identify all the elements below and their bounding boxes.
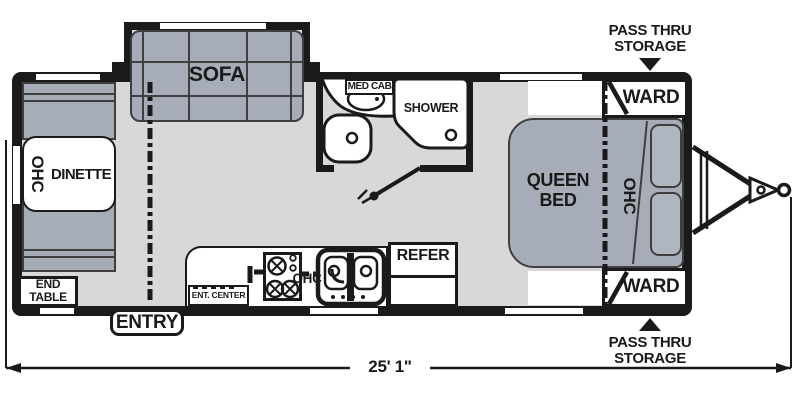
slideout-left-joint bbox=[112, 62, 128, 80]
ent-center-label: ENT. CENTER bbox=[188, 290, 249, 300]
dinette-bench-top bbox=[22, 82, 116, 140]
front-top-window bbox=[500, 74, 582, 80]
rear-bottom-window bbox=[40, 308, 74, 314]
slideout-window bbox=[160, 23, 266, 29]
shower-label: SHOWER bbox=[396, 101, 466, 115]
med-cab-label: MED CAB bbox=[345, 81, 394, 92]
arrow-down-icon bbox=[639, 58, 661, 71]
queen-bed-label: QUEEN BED bbox=[508, 170, 608, 210]
kitchen-ohc-label: OHC bbox=[292, 271, 322, 286]
pass-thru-area-top bbox=[528, 81, 604, 115]
pillow bbox=[650, 124, 682, 188]
entry-label: ENTRY bbox=[110, 312, 184, 334]
dinette-ohc-label: OHC bbox=[25, 144, 47, 204]
sofa-armrest-line-left bbox=[142, 32, 144, 120]
hitch-icon bbox=[693, 147, 790, 233]
bedroom-window bbox=[505, 308, 583, 314]
dimension-label: 25' 1" bbox=[350, 357, 430, 377]
bath-wall-right bbox=[466, 80, 473, 172]
pass-thru-top-label: PASS THRU STORAGE bbox=[593, 23, 707, 55]
refer-label: REFER bbox=[388, 247, 458, 265]
arrow-left-icon bbox=[6, 363, 21, 373]
rear-side-window bbox=[13, 146, 20, 204]
dinette-bench-line bbox=[22, 249, 116, 251]
sofa-seat-line bbox=[132, 95, 302, 97]
bed-ohc-label: OHC bbox=[617, 166, 639, 226]
bath-wall-bottom-left bbox=[316, 165, 334, 172]
ward-bottom-label: WARD bbox=[614, 276, 688, 298]
rear-top-window bbox=[36, 74, 100, 80]
end-table-label: END TABLE bbox=[18, 278, 78, 304]
dinette-bench-line bbox=[22, 256, 116, 258]
dinette-bench-line bbox=[22, 93, 116, 95]
bath-wall-left bbox=[316, 80, 323, 172]
sofa-label: SOFA bbox=[152, 63, 282, 87]
pass-thru-area-bottom bbox=[528, 271, 604, 305]
arrow-up-icon bbox=[639, 318, 661, 331]
arrow-right-icon bbox=[776, 363, 791, 373]
slideout-right-joint bbox=[304, 62, 320, 80]
ward-top-label: WARD bbox=[614, 87, 688, 109]
dinette-bench-line bbox=[22, 100, 116, 102]
kitchen-window bbox=[310, 308, 378, 314]
refer-divider bbox=[391, 275, 455, 278]
pillow bbox=[650, 192, 682, 256]
dinette-label: DINETTE bbox=[48, 166, 114, 183]
travel-trailer-floorplan: SOFA OHC DINETTE END TABLE ENTRY ENT. CE… bbox=[0, 0, 800, 400]
sofa-armrest-line-right bbox=[290, 32, 292, 120]
pass-thru-bottom-label: PASS THRU STORAGE bbox=[593, 335, 707, 367]
